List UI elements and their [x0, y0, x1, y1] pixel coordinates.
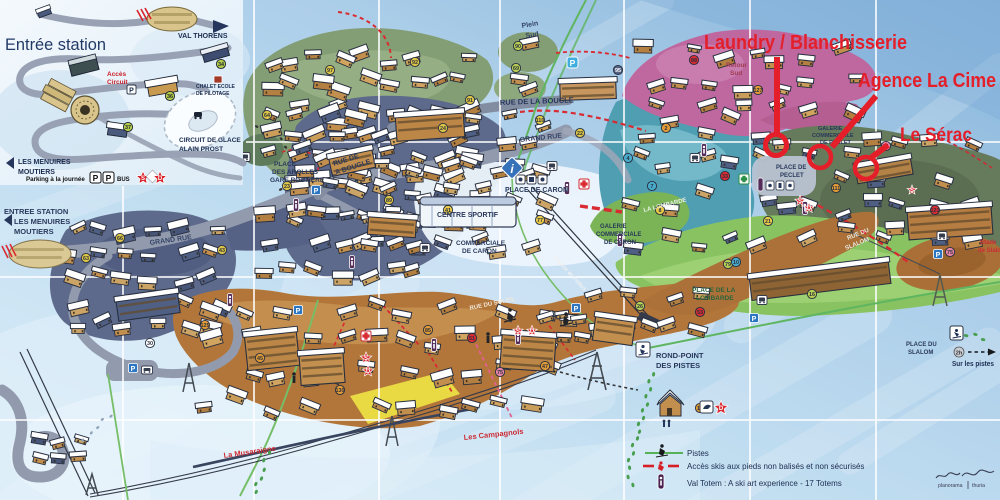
svg-text:BUS: BUS: [117, 177, 130, 183]
svg-text:D: D: [158, 176, 163, 182]
svg-text:Sur les pistes: Sur les pistes: [952, 361, 994, 368]
svg-text:37: 37: [125, 125, 131, 131]
svg-text:CHALET ECOLE: CHALET ECOLE: [196, 84, 236, 90]
svg-text:Agence La Cime: Agence La Cime: [858, 70, 996, 92]
svg-text:CIRCUIT DE GLACE: CIRCUIT DE GLACE: [179, 137, 241, 144]
svg-text:VAL THORENS: VAL THORENS: [178, 33, 228, 40]
svg-text:2h: 2h: [956, 351, 963, 357]
svg-text:36: 36: [167, 94, 173, 100]
svg-text:Entrée station: Entrée station: [5, 35, 106, 54]
svg-text:34: 34: [218, 62, 224, 68]
svg-text:planorama: planorama: [938, 483, 963, 489]
svg-text:P: P: [106, 173, 112, 183]
svg-text:Accès: Accès: [107, 71, 127, 78]
svg-text:Le Sérac: Le Sérac: [900, 125, 972, 146]
svg-text:Accès skis aux pieds non balis: Accès skis aux pieds non balisés et non …: [687, 462, 864, 471]
svg-text:DE PILOTAGE: DE PILOTAGE: [196, 91, 230, 97]
svg-text:thuria: thuria: [972, 483, 985, 489]
svg-text:Pistes: Pistes: [687, 449, 709, 458]
svg-text:P: P: [129, 87, 134, 94]
svg-text:MOUTIERS: MOUTIERS: [18, 169, 55, 176]
svg-text:P: P: [93, 173, 99, 183]
svg-text:S: S: [141, 176, 145, 182]
svg-text:Laundry / Blanchisserie: Laundry / Blanchisserie: [704, 32, 907, 54]
svg-text:LES MENUIRES: LES MENUIRES: [18, 159, 71, 166]
svg-text:Circuit: Circuit: [107, 79, 128, 86]
svg-text:Val Totem : A ski art experien: Val Totem : A ski art experience - 17 To…: [687, 479, 842, 488]
svg-text:Parking à la journée: Parking à la journée: [26, 176, 85, 183]
svg-text:ALAIN PROST: ALAIN PROST: [179, 146, 223, 153]
